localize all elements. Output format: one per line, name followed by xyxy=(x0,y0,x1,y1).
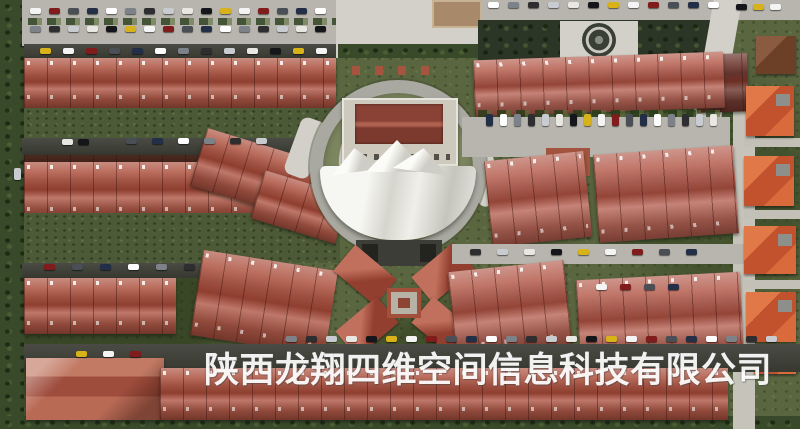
parked-car xyxy=(696,114,703,126)
parked-car xyxy=(668,114,675,126)
parked-car xyxy=(726,336,737,342)
parked-car xyxy=(586,336,597,342)
parked-car xyxy=(584,114,591,126)
parked-car xyxy=(556,114,563,126)
parked-car xyxy=(746,336,757,342)
parked-car xyxy=(72,264,83,270)
parked-car xyxy=(293,48,304,54)
parked-car xyxy=(682,114,689,126)
parked-car xyxy=(542,114,549,126)
parked-car xyxy=(386,336,397,342)
parked-car xyxy=(528,2,539,8)
parked-car xyxy=(126,138,137,144)
parked-car xyxy=(201,26,212,32)
parked-car xyxy=(548,2,559,8)
parked-car xyxy=(128,264,139,270)
parked-car xyxy=(570,114,577,126)
parked-car xyxy=(426,336,437,342)
parked-car xyxy=(78,139,89,145)
parked-car xyxy=(654,114,661,126)
parked-car xyxy=(736,4,747,10)
parked-car xyxy=(144,26,155,32)
parked-car xyxy=(49,8,60,14)
parked-car xyxy=(163,8,174,14)
parked-car xyxy=(201,48,212,54)
parked-car xyxy=(766,336,777,342)
parked-car xyxy=(526,336,537,342)
parked-car xyxy=(40,48,51,54)
parked-car xyxy=(486,336,497,342)
parked-car xyxy=(346,336,357,342)
parked-car xyxy=(258,8,269,14)
parked-car xyxy=(178,48,189,54)
parked-car xyxy=(125,8,136,14)
parked-car xyxy=(446,336,457,342)
parked-car xyxy=(68,26,79,32)
parked-car xyxy=(753,4,764,10)
parked-car xyxy=(152,138,163,144)
parked-car xyxy=(551,249,562,255)
parked-car xyxy=(106,8,117,14)
parked-car xyxy=(296,8,307,14)
parked-car xyxy=(506,336,517,342)
parked-car xyxy=(366,336,377,342)
parked-car xyxy=(568,2,579,8)
parked-car xyxy=(49,26,60,32)
parked-car xyxy=(686,336,697,342)
parked-car xyxy=(466,336,477,342)
parked-car xyxy=(500,114,507,126)
parked-car xyxy=(87,8,98,14)
parked-car xyxy=(184,264,195,270)
parked-car xyxy=(296,26,307,32)
parked-car xyxy=(163,26,174,32)
parked-car xyxy=(488,2,499,8)
parked-car xyxy=(224,48,235,54)
parked-car xyxy=(270,48,281,54)
parked-car xyxy=(668,2,679,8)
parked-car xyxy=(315,8,326,14)
parked-car xyxy=(63,48,74,54)
parked-car xyxy=(182,8,193,14)
parked-car xyxy=(132,48,143,54)
parked-car xyxy=(686,249,697,255)
parked-car xyxy=(628,2,639,8)
parked-car xyxy=(497,249,508,255)
watermark-text: 陕西龙翔四维空间信息科技有限公司 xyxy=(204,352,796,391)
parked-car xyxy=(646,336,657,342)
parked-car xyxy=(30,8,41,14)
parked-car xyxy=(277,8,288,14)
parked-car xyxy=(596,284,607,290)
parked-car xyxy=(648,2,659,8)
parked-car xyxy=(44,264,55,270)
parked-car xyxy=(326,336,337,342)
parked-car xyxy=(100,264,111,270)
parked-car xyxy=(620,284,631,290)
parked-car xyxy=(605,249,616,255)
parked-car xyxy=(178,138,189,144)
parked-car xyxy=(606,336,617,342)
parked-car xyxy=(508,2,519,8)
parked-car xyxy=(644,284,655,290)
parked-car xyxy=(316,48,327,54)
parked-car xyxy=(125,26,136,32)
parked-car xyxy=(239,26,250,32)
parked-car xyxy=(608,2,619,8)
parked-car xyxy=(546,336,557,342)
parked-car xyxy=(256,138,267,144)
parked-car xyxy=(306,336,317,342)
parked-car xyxy=(566,336,577,342)
parked-car xyxy=(659,249,670,255)
parked-car xyxy=(76,351,87,357)
parked-car xyxy=(688,2,699,8)
parked-car xyxy=(87,26,98,32)
aerial-photo-residential-compound: 陕西龙翔四维空间信息科技有限公司 xyxy=(0,0,800,429)
parked-car xyxy=(528,114,535,126)
parked-car xyxy=(86,48,97,54)
parked-car xyxy=(204,138,215,144)
parked-car xyxy=(247,48,258,54)
parked-car xyxy=(668,284,679,290)
parked-car xyxy=(103,351,114,357)
parked-car xyxy=(68,8,79,14)
parked-car xyxy=(14,168,21,180)
parked-car xyxy=(156,264,167,270)
parked-car xyxy=(486,114,493,126)
parked-car xyxy=(220,26,231,32)
parked-car xyxy=(239,8,250,14)
parked-car xyxy=(130,351,141,357)
parked-car xyxy=(514,114,521,126)
parked-car xyxy=(626,336,637,342)
parked-car xyxy=(524,249,535,255)
parked-car xyxy=(62,139,73,145)
parked-car xyxy=(201,8,212,14)
parked-car xyxy=(612,114,619,126)
parked-car xyxy=(632,249,643,255)
parked-car xyxy=(258,26,269,32)
parked-car xyxy=(640,114,647,126)
parked-car xyxy=(706,336,717,342)
parked-car xyxy=(286,336,297,342)
parked-car xyxy=(598,114,605,126)
parked-car xyxy=(144,8,155,14)
parked-car xyxy=(315,26,326,32)
parked-car xyxy=(277,26,288,32)
parked-car xyxy=(230,138,241,144)
parked-car xyxy=(770,4,781,10)
parked-car xyxy=(710,114,717,126)
parked-car xyxy=(588,2,599,8)
parked-car xyxy=(109,48,120,54)
parked-car xyxy=(406,336,417,342)
parked-car xyxy=(182,26,193,32)
parked-car xyxy=(30,26,41,32)
parked-car xyxy=(155,48,166,54)
parked-car xyxy=(626,114,633,126)
parked-car xyxy=(470,249,481,255)
parked-car xyxy=(220,8,231,14)
parked-car xyxy=(666,336,677,342)
parked-car xyxy=(578,249,589,255)
parked-car xyxy=(708,2,719,8)
parked-car xyxy=(106,26,117,32)
